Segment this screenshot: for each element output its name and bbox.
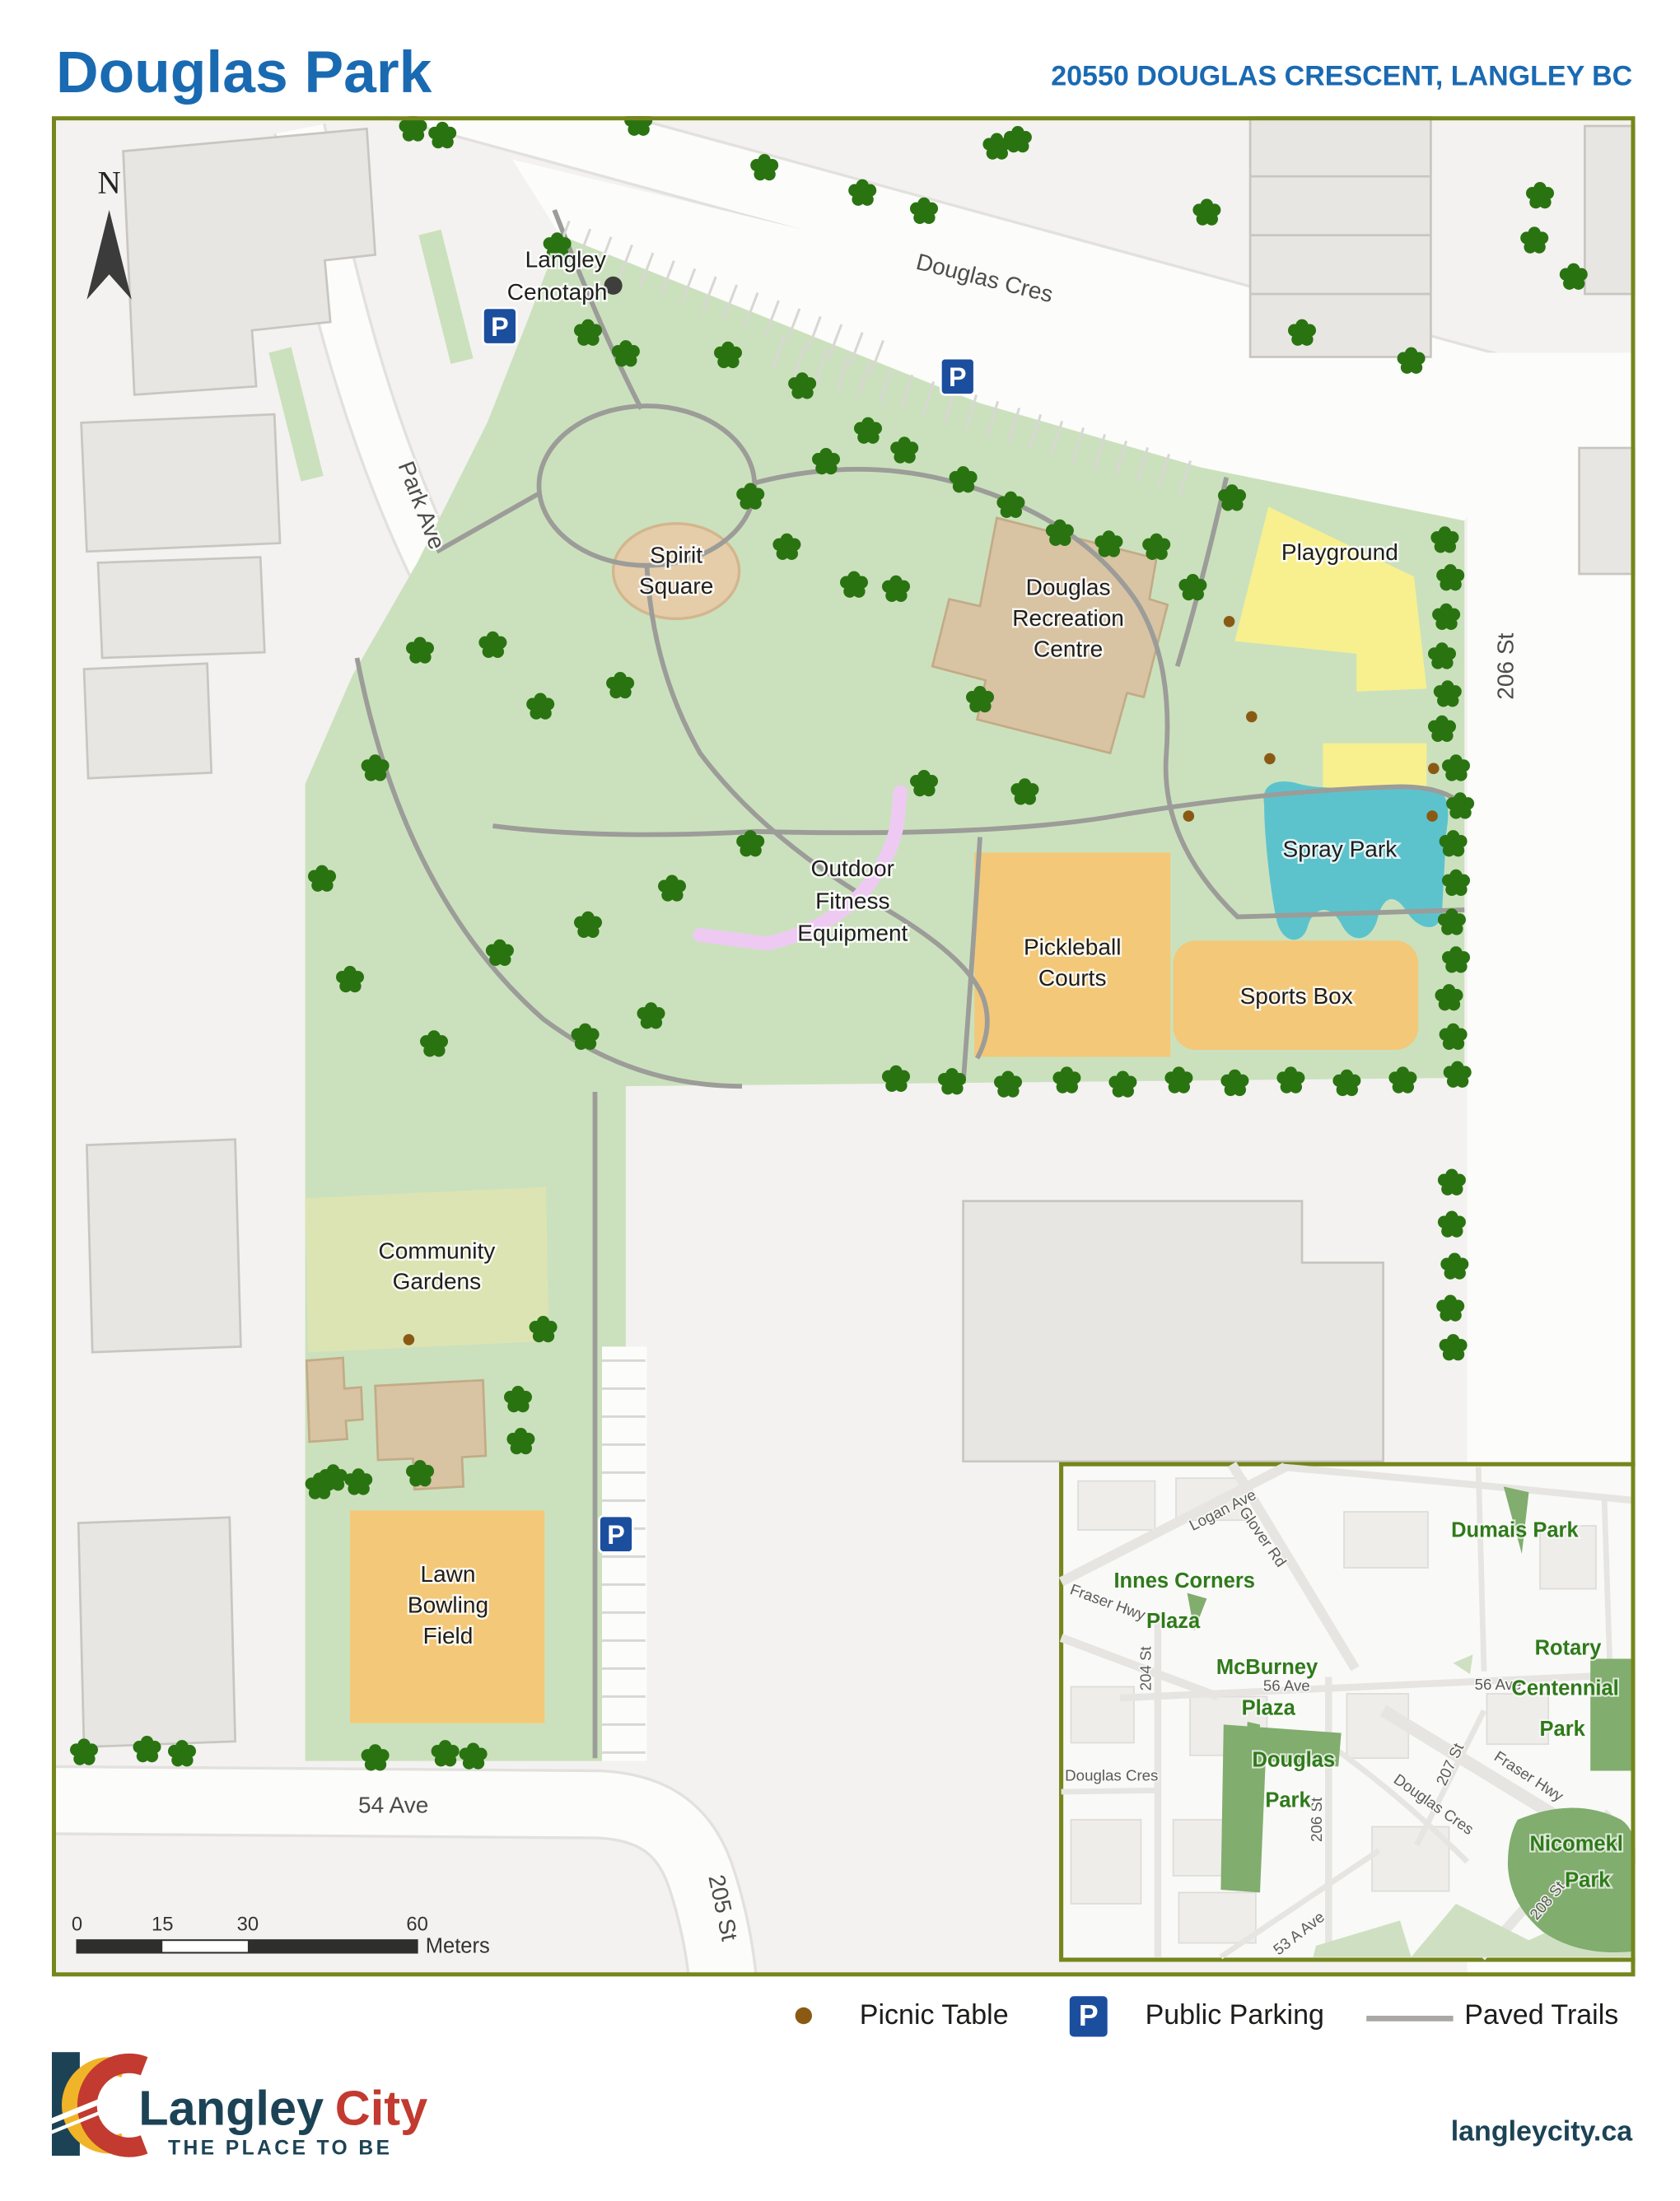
sports-box-label: Sports Box	[1240, 983, 1353, 1009]
page-title: Douglas Park	[56, 40, 432, 107]
inset-street-label: Douglas Cres	[1065, 1766, 1158, 1784]
page: Douglas Park 20550 DOUGLAS CRESCENT, LAN…	[0, 0, 1680, 2200]
lawn-bowling-label: Bowling	[408, 1592, 488, 1617]
inset-park-label: Park	[1540, 1718, 1586, 1741]
legend-trails-label: Paved Trails	[1464, 2000, 1618, 2032]
picnic-table-dot	[1264, 753, 1276, 765]
rec-centre-label: Centre	[1034, 636, 1103, 661]
fitness-label: Fitness	[815, 888, 889, 913]
svg-text:P: P	[491, 312, 509, 342]
spirit-square-label: Square	[639, 573, 713, 599]
cenotaph-label: Langley	[525, 247, 606, 273]
picnic-table-icon	[796, 2007, 812, 2024]
inset-park-label: Rotary	[1535, 1636, 1603, 1659]
inset-park-label: Park	[1265, 1789, 1311, 1812]
inset-map: Logan Ave Glover Rd Fraser Hwy 56 Ave 56…	[1062, 1464, 1636, 1960]
picnic-table-dot	[1183, 810, 1195, 822]
scale-unit: Meters	[426, 1935, 490, 1958]
picnic-table-dot	[1246, 711, 1258, 723]
spirit-square-area	[614, 524, 740, 619]
brand-accent: City	[335, 2082, 427, 2136]
brand-name: LangleyCity	[138, 2082, 427, 2138]
park-map: PPP Langley Cenotaph Spirit Square Dougl…	[52, 116, 1636, 1976]
gardens-label: Community	[378, 1238, 495, 1263]
spray-park-label: Spray Park	[1283, 836, 1398, 861]
scale-tick: 30	[237, 1913, 259, 1935]
parking-sign-icon: P	[600, 1516, 633, 1552]
fitness-label: Equipment	[797, 920, 908, 945]
brand-primary: Langley	[138, 2082, 324, 2136]
206-st-label: 206 St	[1493, 632, 1519, 699]
svg-text:P: P	[949, 362, 967, 392]
rec-centre-label: Recreation	[1012, 605, 1124, 631]
scale-tick: 0	[72, 1913, 82, 1935]
legend-parking-label: Public Parking	[1146, 2000, 1324, 2032]
picnic-table-dot	[1426, 810, 1438, 822]
website-url: langleycity.ca	[1451, 2116, 1632, 2148]
langley-city-logo	[52, 2049, 150, 2161]
inset-street-label: 56 Ave	[1263, 1677, 1310, 1695]
inset-park-label: Plaza	[1146, 1610, 1201, 1633]
inset-street-label: 204 St	[1136, 1646, 1154, 1691]
spirit-square-label: Spirit	[650, 542, 702, 567]
picnic-table-dot	[404, 1334, 415, 1345]
rec-centre-label: Douglas	[1026, 575, 1111, 600]
scale-tick: 60	[406, 1913, 427, 1935]
inset-park-label: Innes Corners	[1113, 1569, 1254, 1592]
lawn-bowling-label: Lawn	[420, 1561, 475, 1587]
inset-park-label: Nicomekl	[1530, 1832, 1623, 1855]
pickleball-label: Courts	[1038, 965, 1107, 991]
fitness-label: Outdoor	[811, 856, 894, 881]
picnic-table-dot	[1428, 763, 1440, 775]
parking-sign-icon: P	[483, 308, 517, 344]
inset-park-label: Douglas	[1253, 1748, 1336, 1771]
svg-text:P: P	[607, 1520, 625, 1550]
gardens-label: Gardens	[393, 1269, 482, 1294]
inset-park-label: Plaza	[1242, 1696, 1296, 1719]
playground-label: Playground	[1281, 539, 1398, 565]
paved-trail-icon	[1366, 2016, 1453, 2021]
54-ave-label: 54 Ave	[358, 1793, 428, 1818]
parking-sign-icon: P	[940, 358, 974, 394]
lawn-parking-strip	[600, 1346, 647, 1760]
cenotaph-label: Cenotaph	[507, 279, 608, 305]
inset-park-label: Park	[1565, 1869, 1611, 1892]
brand-tagline: THE PLACE TO BE	[168, 2138, 392, 2160]
inset-park-label: Centennial	[1511, 1677, 1618, 1700]
inset-park-label: Dumais Park	[1451, 1519, 1579, 1542]
lawn-bowling-label: Field	[423, 1623, 474, 1648]
parking-icon: P	[1070, 1996, 1108, 2036]
pickleball-label: Pickleball	[1024, 934, 1121, 959]
north-label: N	[97, 166, 120, 201]
address: 20550 DOUGLAS CRESCENT, LANGLEY BC	[1051, 62, 1632, 94]
picnic-table-dot	[1224, 616, 1235, 627]
scale-tick: 15	[152, 1913, 173, 1935]
legend-picnic-label: Picnic Table	[860, 2000, 1009, 2032]
inset-park-label: McBurney	[1216, 1656, 1318, 1679]
